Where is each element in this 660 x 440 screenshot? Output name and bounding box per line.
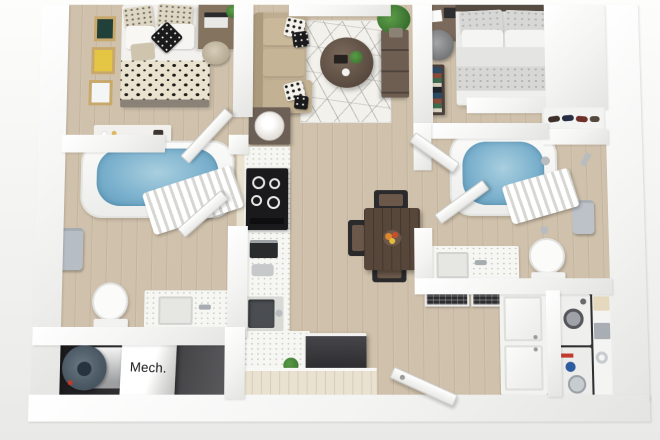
kitchen-sink-basin: [248, 299, 274, 327]
dryer-door: [568, 375, 587, 394]
cabinet-door-panel: [504, 345, 543, 390]
shoes: [562, 115, 574, 122]
plant-pot: [389, 28, 403, 38]
wall-bedroom1-living: [233, 5, 254, 117]
stove-controls: [250, 218, 284, 224]
closet-wall-block: [544, 5, 608, 110]
storage-cabinet: [499, 292, 547, 394]
bed-1: [120, 5, 210, 108]
wall-bedroom1-bathroom1: [61, 135, 165, 153]
wall-window-top-living: [289, 5, 391, 17]
printer: [204, 12, 228, 27]
wall-bathroom1-kitchen: [227, 226, 248, 337]
hose-coil: [596, 351, 608, 363]
wall-bathroom1-stub: [229, 135, 249, 155]
washer-door: [563, 309, 584, 329]
fruit: [389, 238, 395, 244]
throw-pillow: [292, 31, 310, 48]
cabinet-door-panel: [503, 296, 542, 341]
bed-1-blanket-aztec: [120, 61, 210, 102]
kettle: [252, 264, 274, 276]
fruit-bowl: [383, 230, 401, 246]
kitchen-sink: [245, 296, 284, 331]
plant-coffee-table: [350, 51, 363, 64]
fruit: [392, 232, 398, 238]
sofa: [249, 11, 315, 118]
dining-chair-top: [374, 190, 408, 210]
tub-faucet: [541, 156, 550, 165]
media-console: [381, 30, 409, 98]
cabinet-handle: [533, 335, 537, 339]
decor-sphere: [342, 68, 350, 76]
wall-mech-kitchen: [224, 327, 245, 399]
wall-laundry-closet: [546, 290, 562, 396]
shoes: [576, 116, 588, 123]
apartment-floor-plan: Mech.: [0, 5, 660, 440]
sofa-cushion: [263, 49, 305, 78]
toilet-1-bowl: [91, 282, 128, 321]
door-handle: [399, 374, 406, 381]
shoes: [590, 116, 600, 122]
table-lamp: [255, 111, 285, 140]
wall-art-green: [94, 16, 116, 41]
dryer-control-red: [561, 354, 573, 358]
vanity-1-faucet: [199, 305, 211, 310]
bed-2: [455, 5, 553, 106]
desk-chair-bedroom-1: [202, 41, 230, 64]
stove: [246, 168, 288, 230]
washer-dial: [580, 298, 586, 304]
bed-2-blanket: [456, 66, 553, 91]
coffee-maker: [250, 240, 278, 258]
book: [334, 55, 348, 64]
throw-pillow: [294, 95, 309, 110]
storage-box: [593, 296, 610, 310]
wall-bedroom2-bathroom2: [467, 98, 552, 114]
cabinet-handle: [534, 347, 538, 351]
toilet-paper-holder: [540, 226, 548, 234]
toilet-2-bowl: [529, 238, 566, 274]
storage-bin: [594, 323, 611, 339]
outer-wall-bottom: [28, 395, 650, 422]
wall-art-yellow: [91, 47, 115, 74]
bed-1-footboard: [120, 100, 209, 108]
vanity-2-sink: [436, 252, 468, 278]
dryer-knob-blue: [565, 362, 575, 372]
wall-bathroom2-bottom: [415, 278, 613, 294]
coffee-table: [320, 37, 373, 87]
burner: [267, 196, 280, 209]
shoes: [548, 115, 561, 122]
kitchen-faucet: [275, 310, 282, 317]
dining-table: [364, 208, 421, 270]
side-table: [249, 107, 291, 144]
washer: [556, 294, 592, 345]
wall-living-bedroom2: [412, 5, 433, 127]
burner: [252, 176, 265, 189]
wall-bathroom2-top: [427, 123, 548, 139]
chair-seat: [379, 194, 403, 206]
vanity-1-sink: [158, 296, 193, 324]
floor-plan-render: Mech.: [0, 0, 660, 440]
bed-1-pillow-tan: [130, 42, 155, 62]
closet-shelf-edge: [542, 129, 608, 145]
wall-art-white: [88, 80, 112, 105]
wall-bathroom1-mech: [32, 327, 235, 345]
dryer: [557, 347, 593, 396]
burner: [269, 178, 280, 189]
chair-seat: [352, 225, 364, 251]
mech-box: Mech.: [119, 340, 177, 397]
mech-room-label: Mech.: [121, 359, 177, 376]
burner: [251, 195, 262, 206]
vanity-2-faucet: [475, 260, 487, 265]
